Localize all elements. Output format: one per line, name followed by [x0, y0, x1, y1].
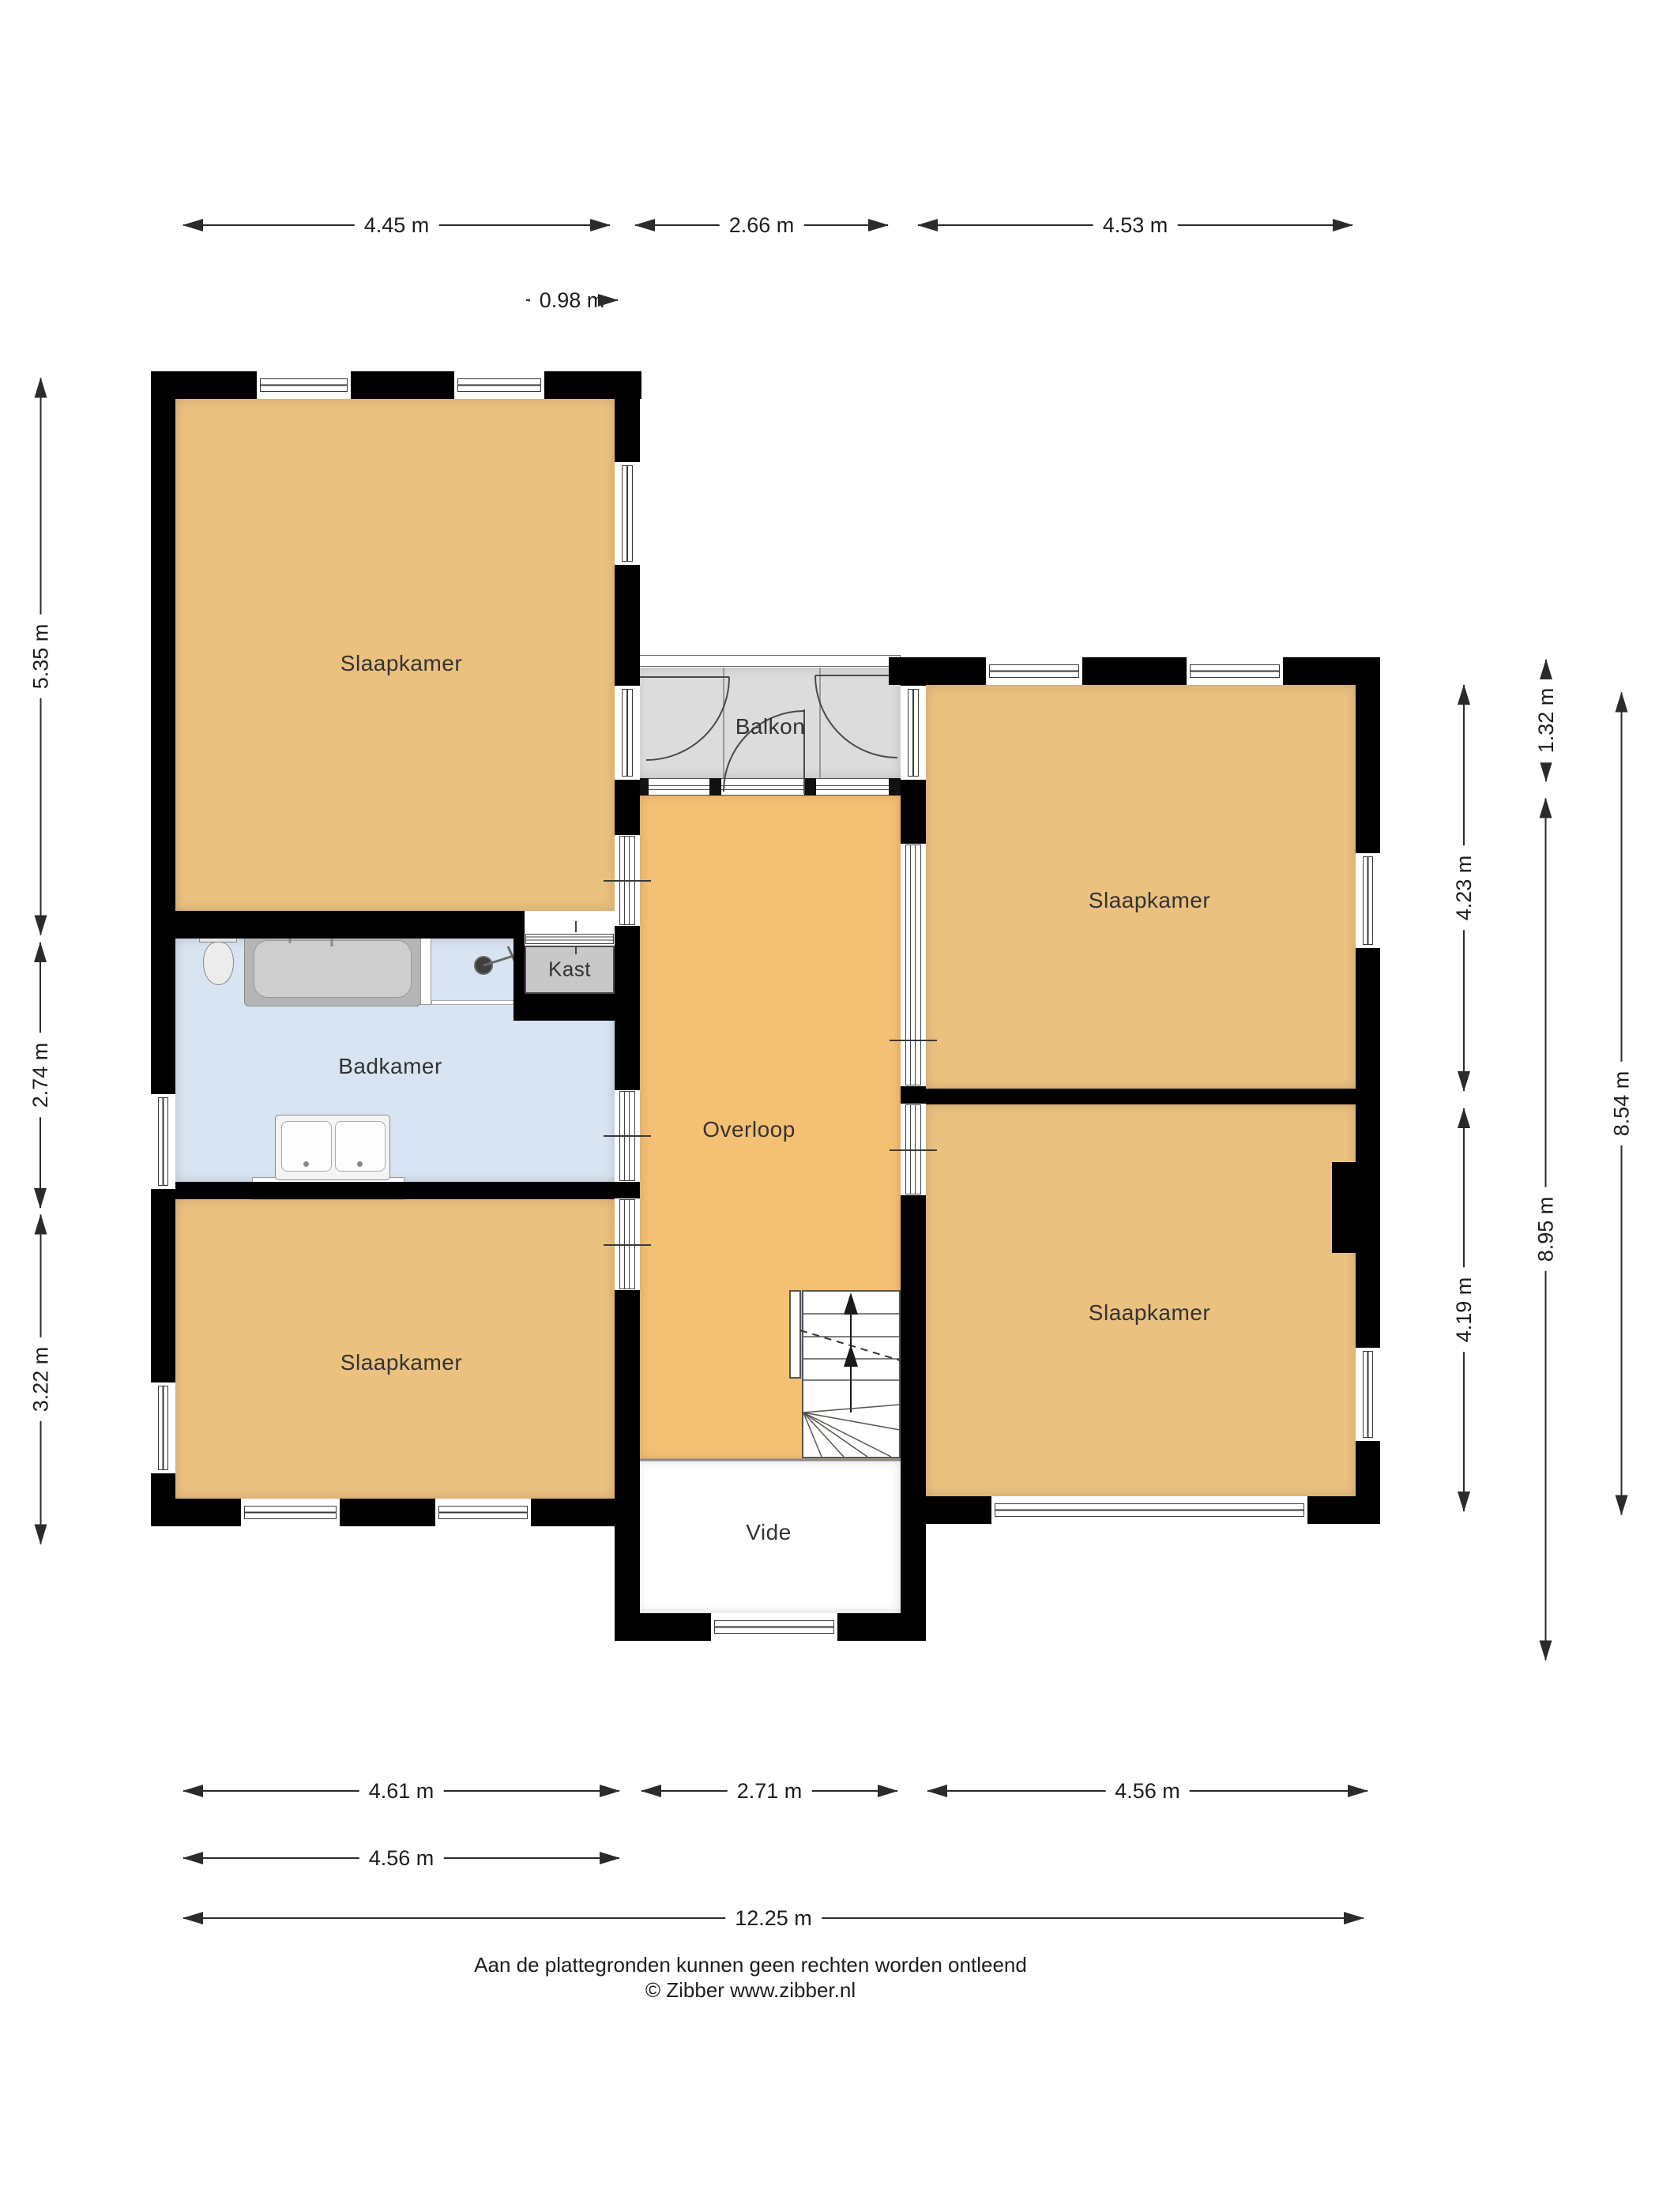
- window: [454, 371, 544, 399]
- sink-faucet: [303, 1161, 309, 1167]
- window: [151, 1382, 175, 1473]
- shower-partition: [420, 932, 431, 1005]
- window: [615, 686, 640, 780]
- window: [241, 1499, 340, 1526]
- sink-faucet: [357, 1161, 363, 1167]
- disclaimer-text: Aan de plattegronden kunnen geen rechten…: [0, 1953, 1501, 1977]
- window: [1187, 657, 1283, 685]
- room-label-landing: Overloop: [702, 1117, 796, 1142]
- balcony-divider: [819, 668, 821, 778]
- toilet-bowl: [203, 942, 234, 985]
- copyright-text: © Zibber www.zibber.nl: [0, 1978, 1501, 2003]
- room-label-closet: Kast: [548, 957, 591, 982]
- room-label-void: Vide: [746, 1520, 792, 1545]
- room-label-balcony: Balkon: [735, 714, 806, 739]
- balcony-glass-wall: [637, 778, 901, 796]
- window: [615, 462, 640, 565]
- window: [257, 371, 351, 399]
- window: [986, 657, 1082, 685]
- room-label-bedroom-top-left: Slaapkamer: [340, 651, 462, 676]
- bathtub-basin: [254, 940, 412, 998]
- interior-window: [901, 844, 926, 1086]
- staircase: [802, 1290, 901, 1458]
- window: [435, 1499, 531, 1526]
- wall-segment: [175, 1182, 615, 1199]
- balcony-post: [804, 778, 816, 796]
- room-label-bedroom-top-right: Slaapkamer: [1089, 888, 1210, 913]
- window: [1356, 1348, 1380, 1441]
- room-label-bedroom-bottom-right: Slaapkamer: [1089, 1300, 1210, 1326]
- room-label-bedroom-bottom-left: Slaapkamer: [340, 1350, 462, 1375]
- staircase-handrail: [789, 1290, 801, 1379]
- wall-segment: [151, 371, 641, 399]
- window: [151, 1094, 175, 1189]
- balcony-divider: [723, 668, 724, 778]
- wall-segment: [175, 911, 525, 939]
- balcony-post: [709, 778, 721, 796]
- interior-window-tick: [604, 1135, 651, 1137]
- interior-window-tick: [890, 1040, 937, 1041]
- balcony-post: [889, 778, 901, 796]
- room-bedroom-bottom-left: [175, 1199, 615, 1499]
- floor-plan-page: Slaapkamer Badkamer Slaapkamer Overloop …: [0, 0, 1659, 2212]
- balcony-railing: [637, 655, 901, 667]
- window: [901, 686, 926, 780]
- wall-segment: [926, 1089, 1356, 1104]
- interior-window: [525, 932, 615, 946]
- window: [1356, 853, 1380, 948]
- shower-tray-edge: [431, 1000, 517, 1005]
- floor-plan: Slaapkamer Badkamer Slaapkamer Overloop …: [0, 0, 1659, 2212]
- window: [991, 1496, 1307, 1524]
- room-label-bathroom: Badkamer: [338, 1054, 442, 1079]
- interior-window-tick: [604, 880, 651, 882]
- wall-segment: [151, 1499, 640, 1526]
- room-bedroom-top-right: [926, 685, 1356, 1089]
- wall-segment: [151, 371, 175, 1526]
- wall-segment: [889, 657, 1380, 685]
- interior-window-tick: [890, 1149, 937, 1151]
- window: [711, 1613, 837, 1641]
- wall-segment: [1332, 1162, 1356, 1253]
- interior-window-tick: [604, 1244, 651, 1246]
